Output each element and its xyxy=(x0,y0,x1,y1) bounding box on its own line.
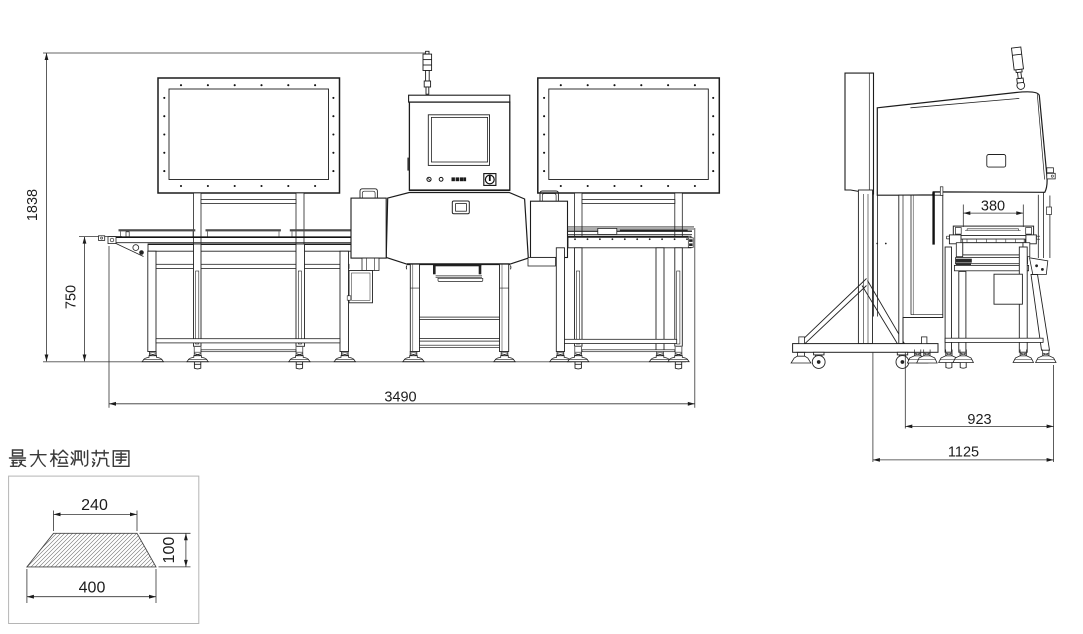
svg-text:100: 100 xyxy=(161,537,178,564)
svg-text:400: 400 xyxy=(79,579,106,596)
svg-text:240: 240 xyxy=(81,497,108,514)
svg-text:923: 923 xyxy=(967,412,991,428)
svg-text:750: 750 xyxy=(64,285,80,309)
svg-text:1838: 1838 xyxy=(25,189,41,221)
svg-text:3490: 3490 xyxy=(384,389,416,405)
svg-text:1125: 1125 xyxy=(948,445,979,461)
svg-text:380: 380 xyxy=(981,198,1005,214)
